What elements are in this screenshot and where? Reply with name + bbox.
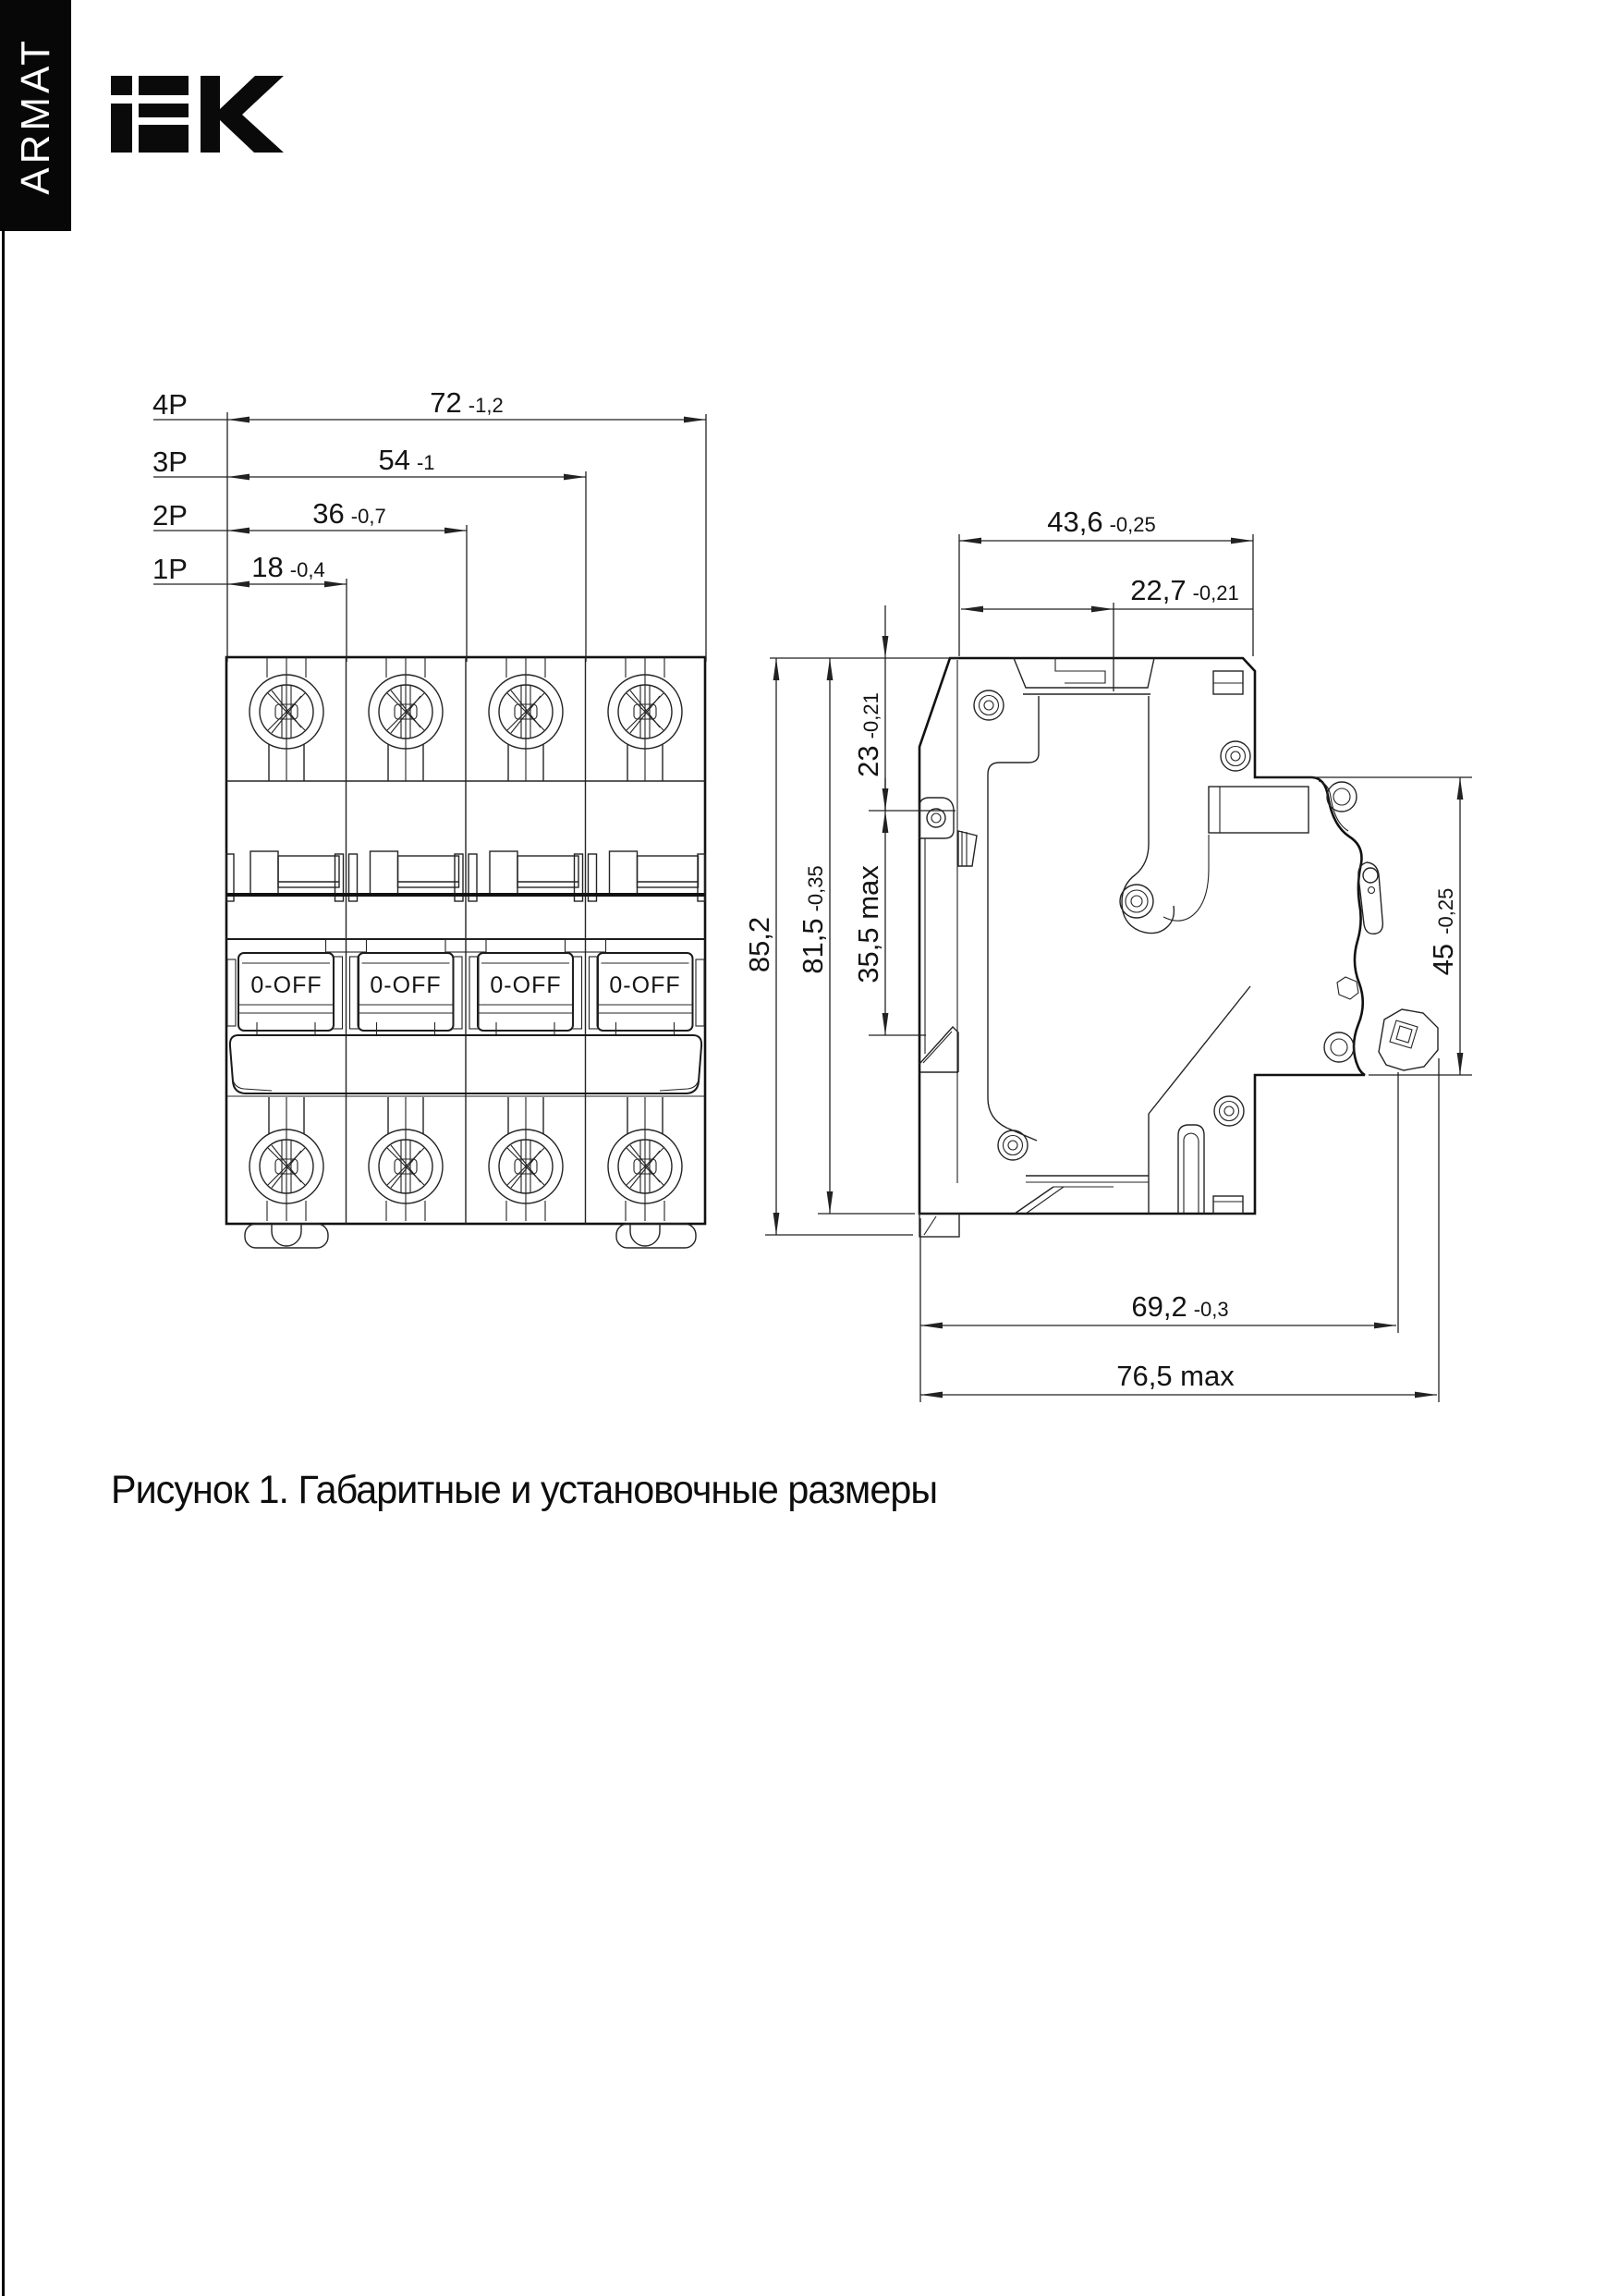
dim-rail-offset: 22,7-0,21 [961,574,1253,691]
rivet-icon [1120,885,1153,918]
front-view-dimensions: 4P 72-1,2 3P 54-1 2P 36-0,7 1 [152,386,706,662]
toggle-label-4: 0-OFF [609,972,680,998]
dim-label-85-2: 85,2 [743,917,775,972]
dim-row-4p: 4P 72-1,2 [152,386,706,662]
dim-row-3p: 3P 54-1 [152,444,586,662]
side-view-dimensions: 43,6-0,25 22,7-0,21 23-0,21 35,5 max [743,506,1472,1402]
dim-label-72: 72-1,2 [430,386,503,419]
pole-count-label: 3P [152,446,188,478]
rivet-icon [1221,741,1250,771]
dim-label-18: 18-0,4 [251,551,324,583]
dim-row-1p: 1P 18-0,4 [152,551,347,662]
figure-caption: Рисунок 1. Габаритные и установочные раз… [111,1468,937,1513]
toggle-label-3: 0-OFF [490,972,561,998]
dim-label-22-7: 22,7-0,21 [1130,574,1239,606]
technical-drawing: 0-OFF 0-OFF 0-OFF 0-OFF [0,0,1619,2296]
front-view: 0-OFF 0-OFF 0-OFF 0-OFF [226,657,705,1248]
dim-label-69-2: 69,2-0,3 [1131,1290,1228,1323]
mounting-feet [245,1224,696,1248]
dim-clip-zone: 35,5 max [852,811,926,1035]
pole-count-label: 2P [152,499,188,531]
dim-label-23: 23-0,21 [852,692,884,777]
toggle-label-1: 0-OFF [250,972,322,998]
datasheet-page: ARMAT [0,0,1619,2296]
dim-label-36: 36-0,7 [312,497,385,530]
din-clip [919,798,977,1072]
bottom-terminal [919,986,1250,1237]
rivet-icon [974,690,1004,720]
dim-top-to-rail: 23-0,21 [852,605,956,811]
side-view [919,658,1438,1237]
lockout-tab [1379,1009,1438,1070]
top-right-slot [1213,671,1243,694]
toggle-lever [1319,781,1382,999]
top-recess [1014,658,1154,694]
dim-label-35-5: 35,5 max [852,865,884,983]
rivet-icon [998,1130,1028,1160]
dim-label-45: 45-0,25 [1427,888,1459,976]
dim-depth: 69,2-0,3 [920,1072,1398,1402]
pole-count-label: 4P [152,388,188,421]
toggle-label-2: 0-OFF [370,972,441,998]
dim-label-81-5: 81,5-0,35 [797,865,829,974]
dim-label-54: 54-1 [378,444,434,476]
dim-depth-max: 76,5 max [920,1058,1439,1402]
dim-label-76-5: 76,5 max [1116,1360,1235,1392]
pole-count-label: 1P [152,553,188,585]
dim-panel-cutout: 45-0,25 [1259,777,1472,1075]
dim-label-43-6: 43,6-0,25 [1047,506,1156,538]
toggle-pivot-icon [1324,1032,1354,1062]
rivet-icon [1214,1096,1244,1126]
toggle-pivot-icon [1327,782,1357,812]
